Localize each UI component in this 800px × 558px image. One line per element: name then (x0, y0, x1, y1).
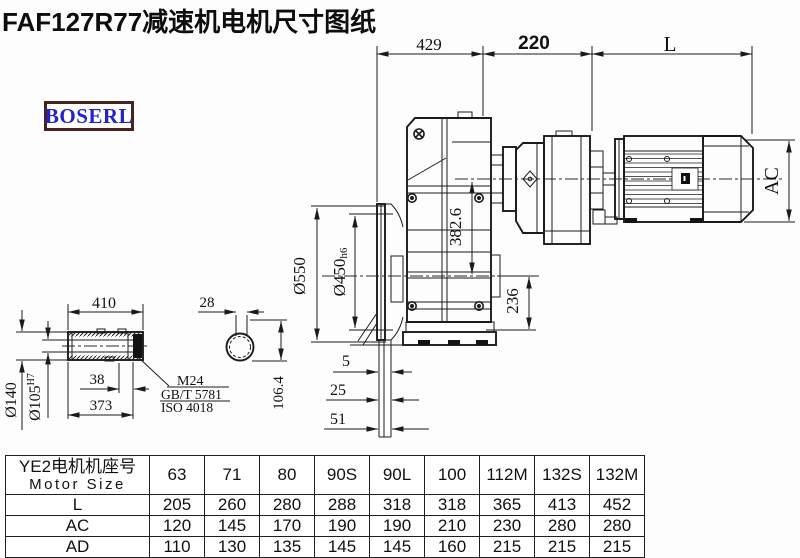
column-header-motor-size: YE2电机机座号Motor Size (6, 456, 150, 495)
cell-ad-112M: 215 (480, 537, 535, 558)
motor-size-header-en: Motor Size (6, 476, 149, 493)
cell-ac-132S: 280 (535, 516, 590, 537)
dim-L: L (664, 32, 677, 56)
dim-373: 373 (90, 398, 113, 414)
cell-ac-132M: 280 (590, 516, 645, 537)
centerlines (62, 179, 782, 346)
motor-size-table: YE2电机机座号Motor Size63718090S90L100112M132… (5, 455, 645, 558)
column-header-90S: 90S (315, 456, 370, 495)
dimension-lines (16, 46, 795, 430)
cell-l-90S: 288 (315, 495, 370, 516)
row-label-ac: AC (6, 516, 150, 537)
dim-5: 5 (342, 353, 350, 370)
dim-51: 51 (330, 411, 346, 428)
column-header-112M: 112M (480, 456, 535, 495)
dim-105h7: Ø105H7 (26, 373, 44, 421)
dim-AC: AC (761, 167, 783, 195)
dim-220: 220 (518, 33, 550, 54)
dim-429: 429 (416, 35, 442, 54)
cell-ac-90S: 190 (315, 516, 370, 537)
cell-l-71: 260 (205, 495, 260, 516)
cell-l-132M: 452 (590, 495, 645, 516)
cell-ac-71: 145 (205, 516, 260, 537)
dim-140: Ø140 (3, 382, 20, 418)
dim-236: 236 (503, 288, 522, 314)
cell-ad-71: 130 (205, 537, 260, 558)
motor-size-table-body: YE2电机机座号Motor Size63718090S90L100112M132… (6, 456, 645, 558)
column-header-100: 100 (425, 456, 480, 495)
cell-ac-63: 120 (150, 516, 205, 537)
table-row-ac: AC120145170190190210230280280 (6, 516, 645, 537)
row-label-l: L (6, 495, 150, 516)
dim-25: 25 (330, 382, 346, 399)
column-header-71: 71 (205, 456, 260, 495)
cell-ac-112M: 230 (480, 516, 535, 537)
column-header-132M: 132M (590, 456, 645, 495)
column-header-90L: 90L (370, 456, 425, 495)
shaft-section-view (227, 334, 254, 361)
shaft-detail-view (68, 329, 143, 361)
page: { "title": "FAF127R77减速机电机尺寸图纸", "brand"… (0, 0, 800, 557)
gearbox-side-view (350, 112, 500, 437)
table-header-row: YE2电机机座号Motor Size63718090S90L100112M132… (6, 456, 645, 495)
cell-l-100: 318 (425, 495, 480, 516)
dim-450h6: Ø450h6 (330, 247, 350, 296)
cell-ad-63: 110 (150, 537, 205, 558)
table-row-ad: AD110130135145145160215215215 (6, 537, 645, 558)
dim-106-4: 106.4 (271, 376, 287, 410)
cell-l-90L: 318 (370, 495, 425, 516)
row-label-ad: AD (6, 537, 150, 558)
cell-l-80: 280 (260, 495, 315, 516)
cell-l-63: 205 (150, 495, 205, 516)
dim-550: Ø550 (290, 257, 309, 295)
dimension-labels: 429 220 L AC Ø550 Ø450h6 382.6 236 5 25 … (3, 32, 783, 428)
cell-ad-80: 135 (260, 537, 315, 558)
cell-ad-90L: 145 (370, 537, 425, 558)
column-header-63: 63 (150, 456, 205, 495)
cell-ad-132M: 215 (590, 537, 645, 558)
dim-410: 410 (92, 295, 116, 312)
table-row-l: L205260280288318318365413452 (6, 495, 645, 516)
cell-ac-90L: 190 (370, 516, 425, 537)
dim-382-6: 382.6 (446, 208, 465, 246)
input-adapter (491, 131, 617, 244)
column-header-132S: 132S (535, 456, 590, 495)
cell-ac-80: 170 (260, 516, 315, 537)
cell-l-132S: 413 (535, 495, 590, 516)
dim-38: 38 (90, 372, 105, 388)
column-header-80: 80 (260, 456, 315, 495)
cell-l-112M: 365 (480, 495, 535, 516)
cell-ad-132S: 215 (535, 537, 590, 558)
motor-side-view (615, 136, 753, 223)
cell-ad-90S: 145 (315, 537, 370, 558)
dim-28: 28 (200, 295, 215, 311)
cell-ac-100: 210 (425, 516, 480, 537)
label-iso4018: ISO 4018 (161, 400, 213, 415)
motor-size-header-cn: YE2电机机座号 (6, 457, 149, 476)
cell-ad-100: 160 (425, 537, 480, 558)
